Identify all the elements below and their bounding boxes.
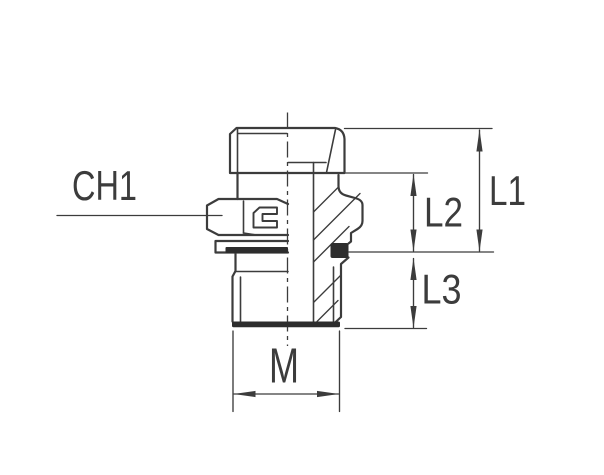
seal-section-block — [331, 243, 349, 258]
bottom-face-edge — [232, 322, 340, 328]
label-m: M — [269, 340, 299, 394]
label-l2: L2 — [424, 189, 463, 236]
technical-drawing-page: CH1 L1 L2 L3 M — [0, 0, 604, 475]
label-ch1: CH1 — [72, 162, 137, 209]
fitting-technical-drawing: CH1 L1 L2 L3 M — [0, 0, 604, 475]
label-l1: L1 — [489, 167, 526, 214]
label-l3: L3 — [422, 266, 462, 313]
seal-band-left — [226, 247, 289, 253]
background — [0, 0, 604, 475]
